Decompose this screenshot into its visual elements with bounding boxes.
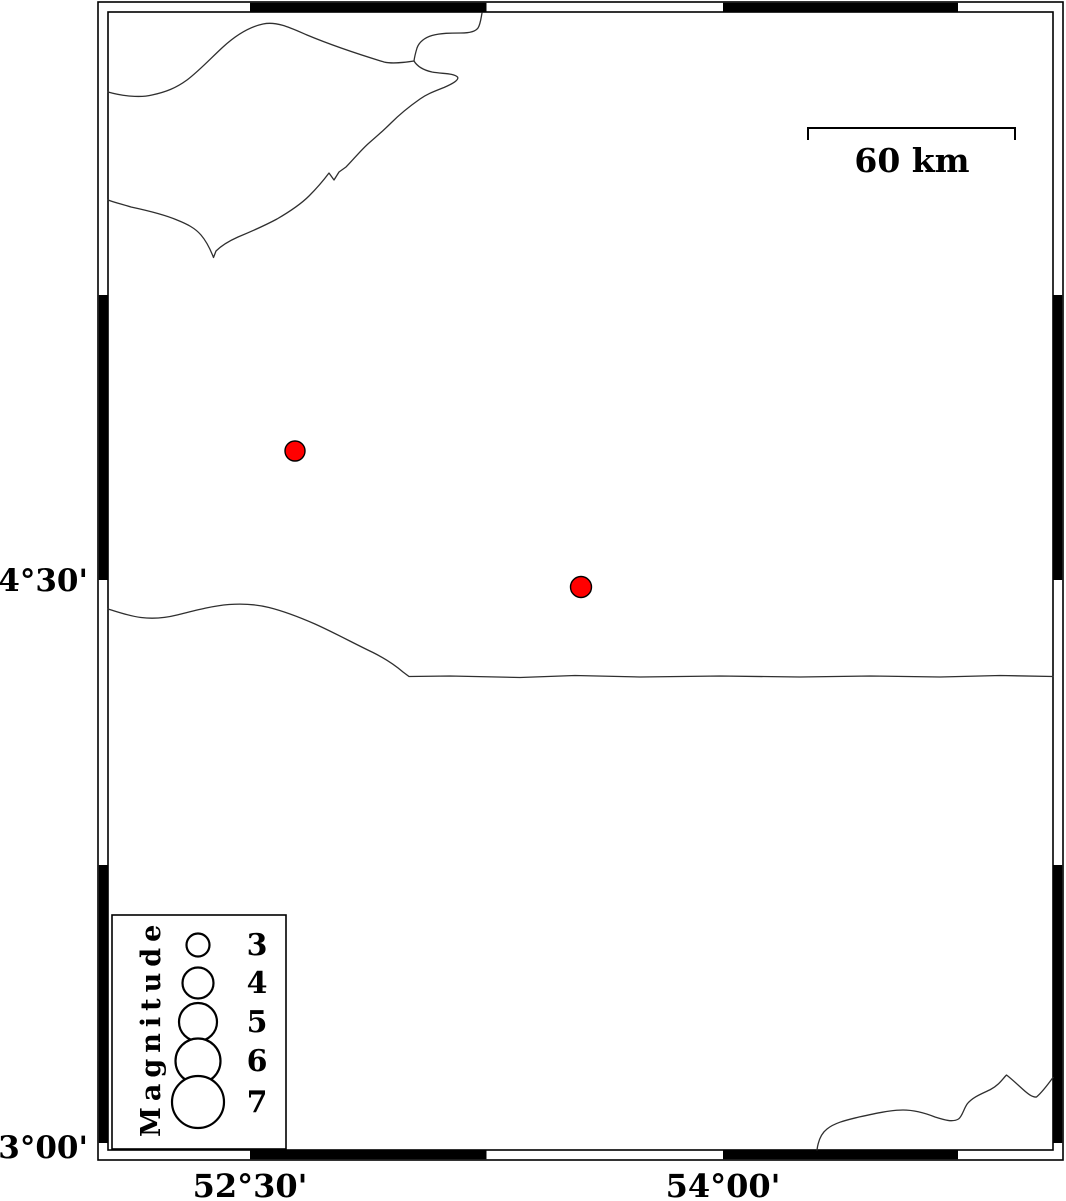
- legend-label-m7: 7: [247, 1085, 268, 1120]
- coastline-lake-outline: [108, 23, 458, 257]
- frame-segment-left-2: [99, 865, 108, 1143]
- epicenters: [285, 441, 592, 598]
- frame-segment-top-2: [723, 3, 958, 12]
- legend-label-m5: 5: [247, 1005, 268, 1040]
- frame-segment-left-1: [99, 295, 108, 580]
- frame-segment-bottom-1: [250, 1150, 487, 1159]
- legend-circle-m5: [179, 1003, 217, 1041]
- legend-label-m6: 6: [247, 1044, 268, 1079]
- scalebar-label: 60 km: [854, 141, 969, 180]
- legend-circle-m4: [183, 968, 214, 999]
- lat-label-34-30: 34°30': [0, 563, 88, 599]
- legend-label-m3: 3: [247, 928, 268, 963]
- epicenter-dot-1: [285, 441, 305, 461]
- coastline-north-connector: [414, 13, 482, 61]
- legend-title: Magnitude: [136, 919, 167, 1137]
- legend-circle-m7: [172, 1076, 224, 1128]
- lat-label-33-00: 33°00': [0, 1130, 88, 1166]
- frame-segment-top-1: [250, 3, 487, 12]
- coastline-southeast: [817, 1075, 1053, 1150]
- map-canvas: 60 km 34°30' 33°00' 52°30' 54°00' Magnit…: [0, 0, 1066, 1201]
- epicenter-dot-2: [571, 577, 592, 598]
- legend-circle-m3: [187, 934, 210, 957]
- magnitude-legend: Magnitude 3 4 5 6 7: [112, 915, 286, 1149]
- frame-segment-right-1: [1053, 295, 1062, 580]
- coastline-mid-shoreline: [108, 604, 1053, 677]
- seismicity-map: 60 km 34°30' 33°00' 52°30' 54°00' Magnit…: [0, 0, 1066, 1201]
- lon-label-52-30: 52°30': [193, 1167, 308, 1201]
- scalebar: 60 km: [808, 128, 1015, 180]
- frame-segment-right-2: [1053, 865, 1062, 1143]
- frame-segment-bottom-2: [723, 1150, 958, 1159]
- legend-label-m4: 4: [247, 966, 268, 1001]
- lon-label-54-00: 54°00': [666, 1167, 781, 1201]
- scalebar-bracket: [808, 128, 1015, 140]
